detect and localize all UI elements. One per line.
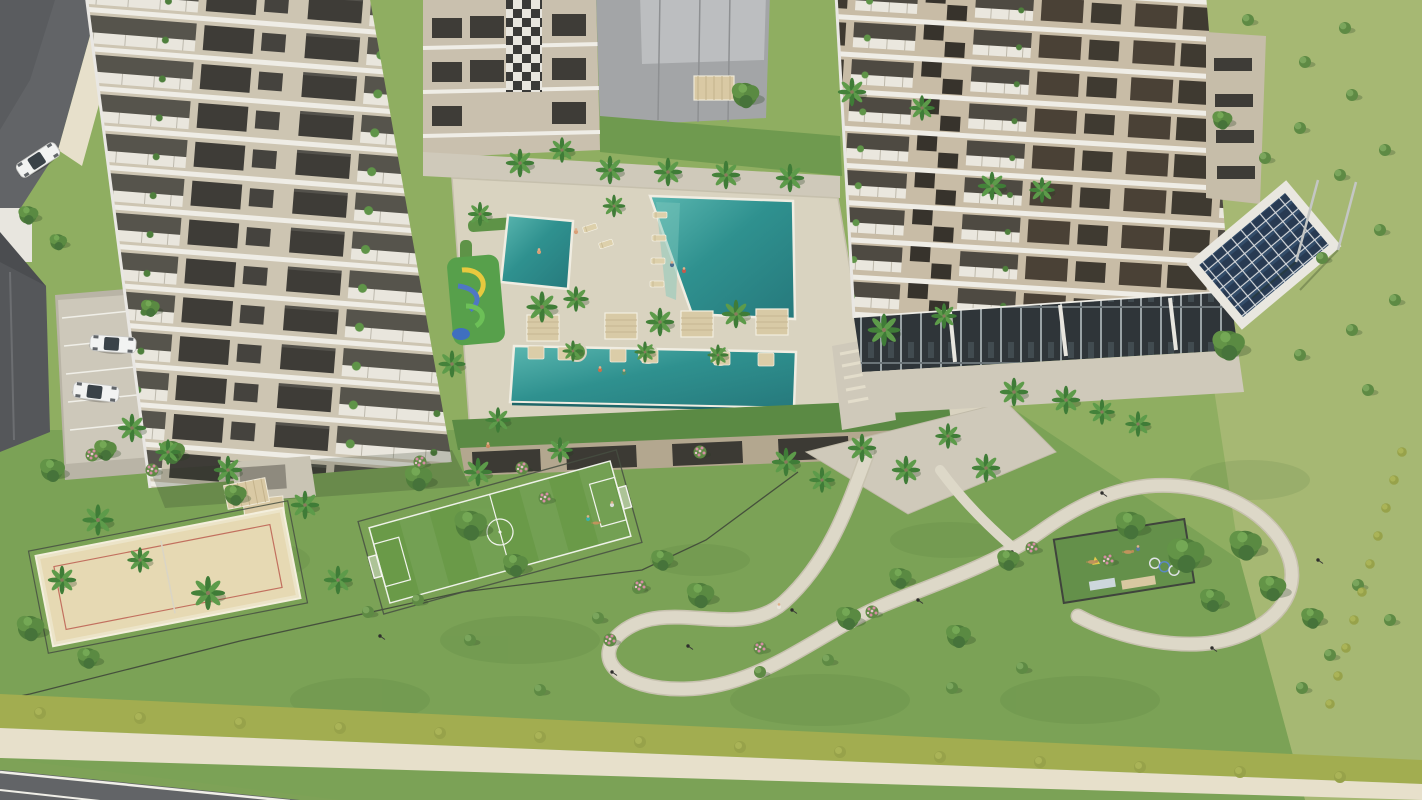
hedge-shrub xyxy=(1325,699,1335,709)
hedge-shrub xyxy=(1334,771,1346,783)
hedge-shrub xyxy=(534,731,546,743)
sun-lounger xyxy=(652,235,666,241)
hedge-shrub xyxy=(834,746,846,758)
hedge-shrub xyxy=(434,727,446,739)
cabana xyxy=(681,311,713,337)
pool-tanning-ledge xyxy=(758,353,774,366)
right-tower-facade xyxy=(836,0,1230,318)
kids-water-playground xyxy=(446,254,505,346)
hedge-shrub xyxy=(1397,447,1407,457)
cabana xyxy=(756,309,788,335)
hedge-shrub xyxy=(1034,756,1046,768)
hedge-shrub xyxy=(1134,761,1146,773)
pool-tanning-ledge xyxy=(528,346,544,359)
hedge-shrub xyxy=(1341,643,1351,653)
pool-tanning-ledge xyxy=(610,349,626,362)
hedge-shrub xyxy=(1389,475,1399,485)
hedge-shrub xyxy=(1357,587,1367,597)
hedge-shrub xyxy=(1349,615,1359,625)
right-apartment-tower xyxy=(836,0,1266,414)
hedge-shrub xyxy=(934,751,946,763)
cabana xyxy=(605,313,637,339)
sun-lounger xyxy=(650,281,664,287)
dark-roof xyxy=(0,262,50,452)
hedge-shrub xyxy=(1381,503,1391,513)
hedge-shrub xyxy=(634,736,646,748)
hedge-shrub xyxy=(234,717,246,729)
aerial-site-render xyxy=(0,0,1422,800)
hedge-shrub xyxy=(1365,559,1375,569)
hedge-shrub xyxy=(334,722,346,734)
sun-lounger xyxy=(651,258,665,264)
sun-lounger xyxy=(653,212,667,218)
hedge-shrub xyxy=(1373,531,1383,541)
render-canvas xyxy=(0,0,1422,800)
hedge-shrub xyxy=(1333,671,1343,681)
splash-pool xyxy=(452,328,470,340)
hedge-shrub xyxy=(734,741,746,753)
hedge-shrub xyxy=(34,707,46,719)
hedge-shrub xyxy=(134,712,146,724)
hedge-shrub xyxy=(1234,766,1246,778)
checkered-facade-strip xyxy=(506,0,542,92)
